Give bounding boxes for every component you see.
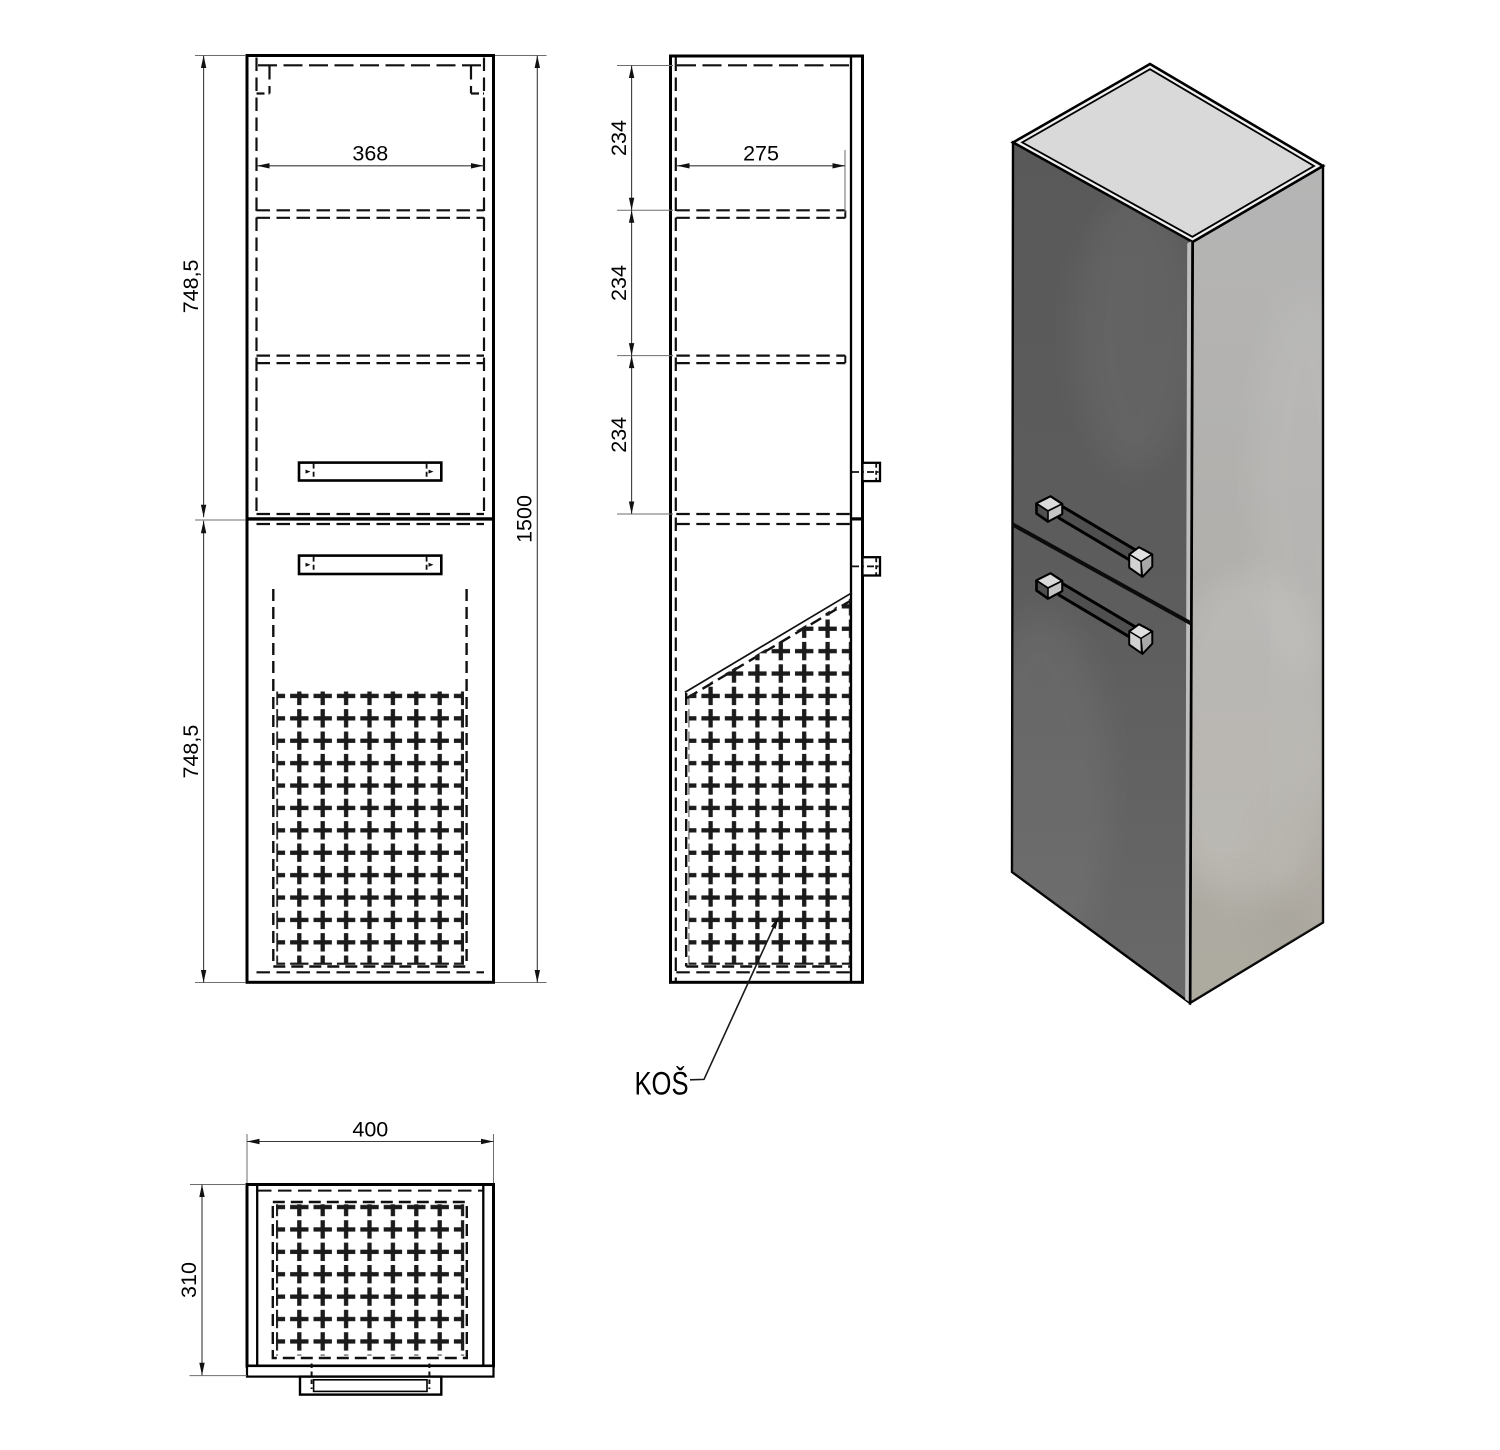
- svg-text:310: 310: [177, 1262, 201, 1298]
- svg-text:KOŠ: KOŠ: [635, 1066, 689, 1102]
- svg-text:400: 400: [352, 1117, 388, 1141]
- svg-text:275: 275: [743, 142, 779, 166]
- svg-text:234: 234: [607, 120, 631, 156]
- svg-text:368: 368: [352, 142, 388, 166]
- svg-text:748,5: 748,5: [179, 259, 203, 313]
- svg-text:234: 234: [607, 417, 631, 453]
- svg-text:748,5: 748,5: [179, 725, 203, 779]
- svg-text:1500: 1500: [513, 495, 537, 543]
- svg-text:234: 234: [607, 265, 631, 301]
